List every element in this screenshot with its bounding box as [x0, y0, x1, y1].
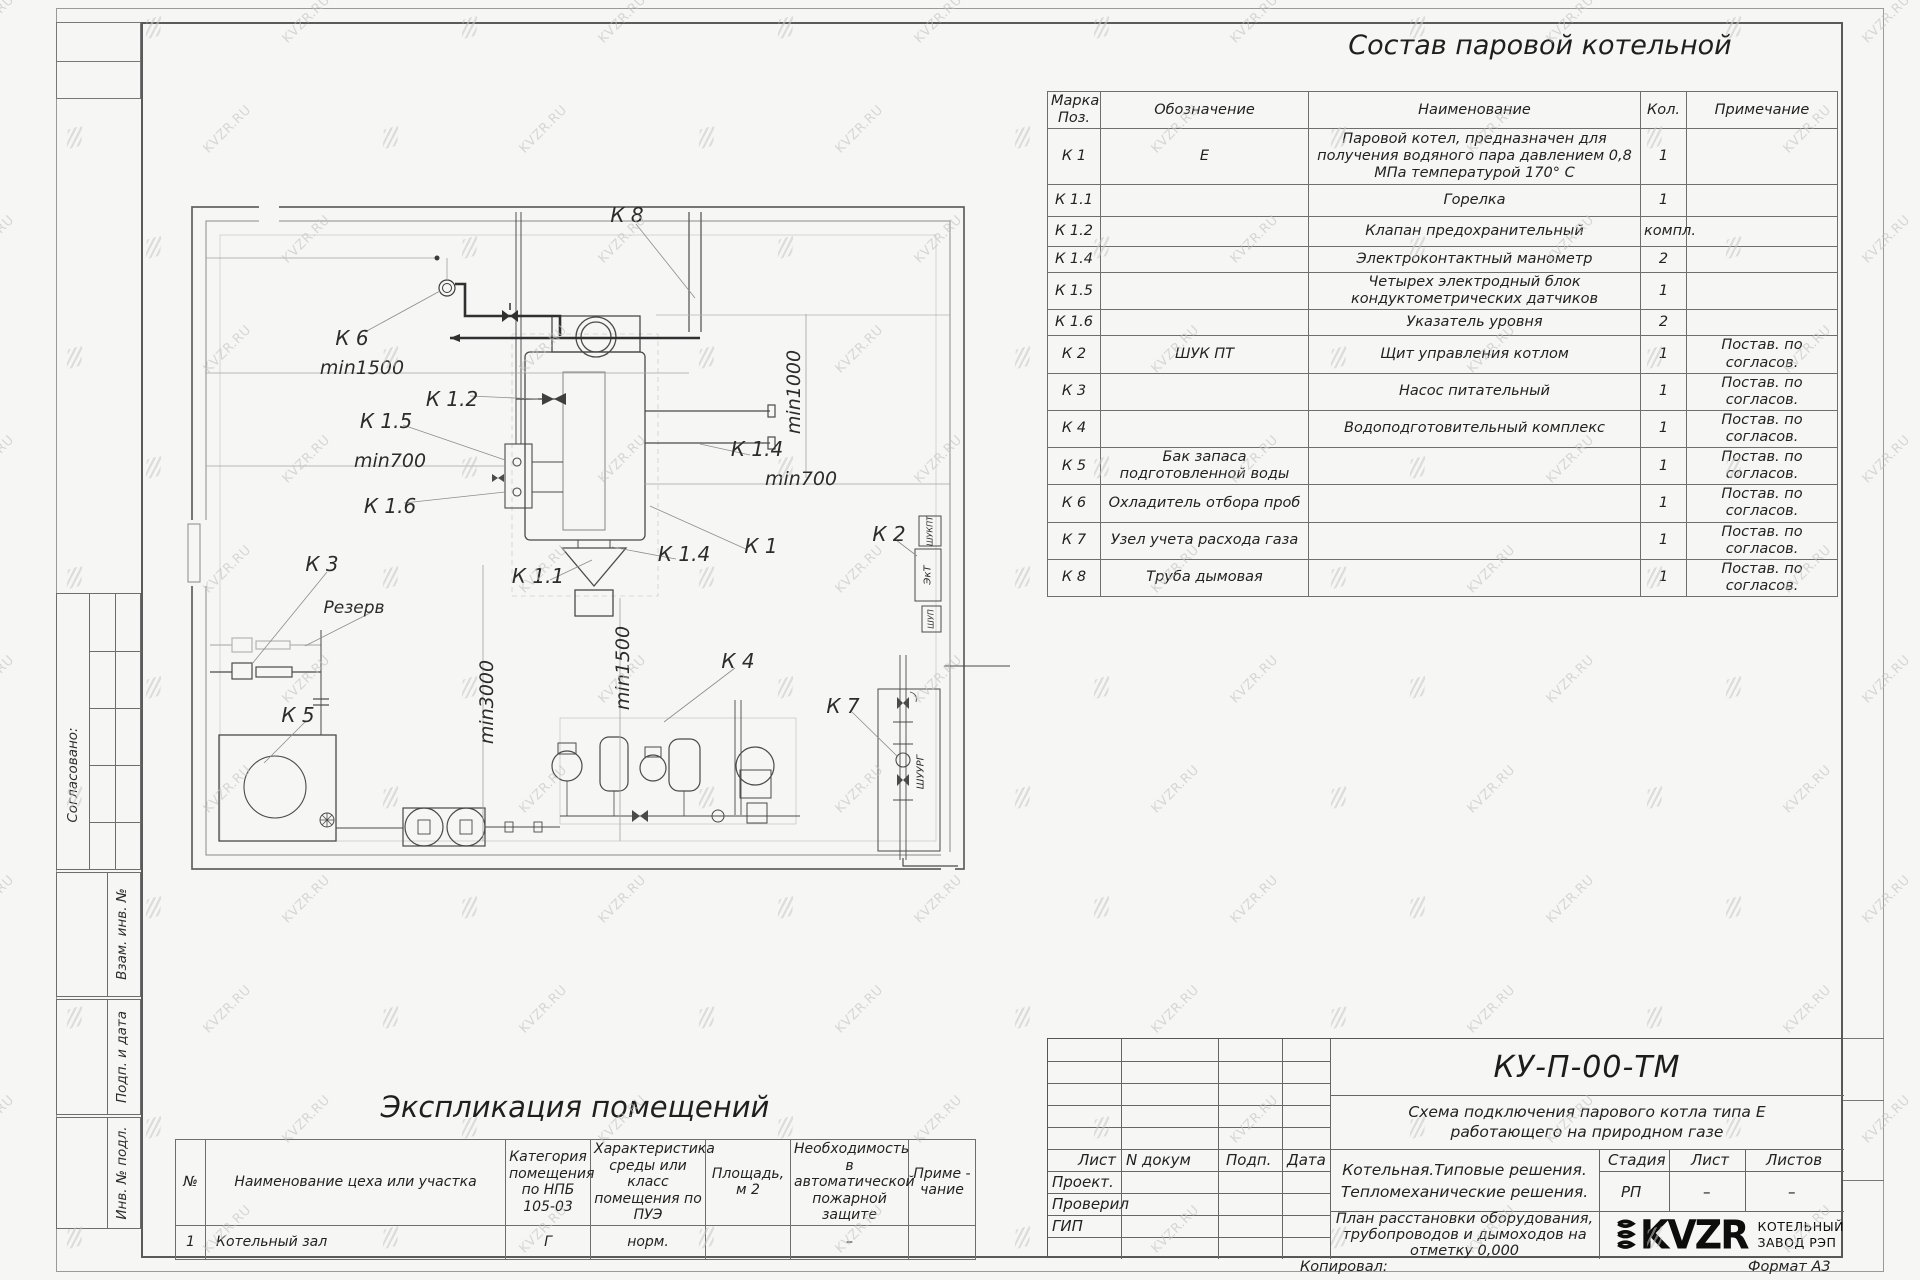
role-checked: Проверил: [1052, 1195, 1129, 1213]
leader-lines: [252, 224, 917, 763]
feed-pump-reserve: [210, 638, 321, 652]
cabinet-label-shuurg: ШУУРГ: [916, 755, 927, 789]
plan-label-k5: К 5: [281, 703, 314, 727]
plan-dim-min3000: min3000: [476, 660, 498, 744]
table-row: К 7Узел учета расхода газа1Постав. по со…: [1048, 522, 1838, 559]
pump-unit: [336, 808, 560, 846]
table-row: К 2ШУК ПТЩит управления котлом1Постав. п…: [1048, 336, 1838, 373]
dimension-lines: [206, 314, 950, 841]
sheets-value: –: [1788, 1183, 1796, 1201]
kvzr-logo-caption: КОТЕЛЬНЫЙ ЗАВОД РЭП: [1757, 1219, 1844, 1252]
document-subtitle: Схема подключения парового котла типа Е …: [1330, 1097, 1844, 1147]
col-header-env: Характеристика среды или класс помещения…: [591, 1140, 706, 1226]
cabinet-label-shup: ШУП: [927, 609, 936, 628]
sheets-header: Листов: [1766, 1151, 1822, 1169]
gas-metering-unit: [878, 655, 1010, 866]
table-row: К 4Водоподготовительный комплекс1Постав.…: [1048, 410, 1838, 447]
table-row: 1 Котельный зал Г норм. –: [176, 1225, 976, 1259]
table-header-row: № Наименование цеха или участка Категори…: [176, 1140, 976, 1226]
subtitle-line2: работающего на природном газе: [1451, 1122, 1724, 1142]
table-row: К 1.2Клапан предохранительныйкомпл.: [1048, 217, 1838, 247]
sample-cooler-pipes: [206, 256, 700, 343]
plan-dim-min1500-top: min1500: [320, 357, 404, 379]
document-number: КУ-П-00-ТМ: [1330, 1039, 1844, 1095]
role-project: Проект.: [1052, 1173, 1114, 1191]
rev-header-date: Дата: [1287, 1151, 1326, 1169]
col-header-name: Наименование: [1309, 92, 1641, 129]
plan-label-k1: К 1: [744, 534, 777, 558]
table-row: К 1.5Четырех электродный блок кондуктоме…: [1048, 273, 1838, 310]
cabinet-label-ekt: ЭкТ: [923, 565, 934, 584]
composition-table-title: Состав паровой котельной: [1240, 30, 1840, 61]
plan-label-k14-lower: К 1.4: [658, 542, 710, 566]
plan-label-k14-upper: К 1.4: [731, 437, 783, 461]
col-header-note: Приме - чание: [909, 1140, 976, 1226]
plan-label-k12: К 1.2: [426, 387, 478, 411]
object-description: Котельная.Типовые решения. Тепломеханиче…: [1330, 1151, 1599, 1211]
explication-table: № Наименование цеха или участка Категори…: [175, 1139, 976, 1260]
role-gip: ГИП: [1052, 1217, 1083, 1235]
rev-header-doc: N докум: [1126, 1151, 1191, 1169]
stage-value: РП: [1621, 1183, 1641, 1201]
plan-dim-min1500-mid: min1500: [612, 626, 634, 710]
col-header-mark: Марка Поз.: [1048, 92, 1101, 129]
rev-header-sign: Подп.: [1226, 1151, 1271, 1169]
table-header-row: Марка Поз. Обозначение Наименование Кол.…: [1048, 92, 1838, 129]
table-row: К 6Охладитель отбора проб1Постав. по сог…: [1048, 485, 1838, 522]
plan-label-rezerv: Резерв: [323, 598, 384, 618]
title-block: Лист N докум Подп. Дата Проект. Проверил…: [1047, 1038, 1843, 1258]
sheet-header: Лист: [1691, 1151, 1729, 1169]
plan-label-k3: К 3: [305, 552, 338, 576]
plan-label-k16: К 1.6: [364, 494, 416, 518]
chimney-flue: [656, 212, 950, 332]
drawing-sheet: Согласовано: Взам. инв. № Подп. и дата И…: [0, 0, 1920, 1280]
plan-dim-min700-left: min700: [354, 450, 426, 472]
rev-header-sheet: Лист: [1078, 1151, 1116, 1169]
plan-label-k2: К 2: [872, 522, 905, 546]
plan-label-k8: К 8: [610, 203, 643, 227]
kvzr-logo-icon: [1615, 1215, 1636, 1255]
col-header-num: №: [176, 1140, 206, 1226]
plan-label-k6: К 6: [335, 326, 368, 350]
drawing-name: План расстановки оборудования, трубопров…: [1330, 1211, 1599, 1259]
table-row: К 1.4Электроконтактный манометр2: [1048, 247, 1838, 273]
format-label: Формат А3: [1748, 1259, 1831, 1275]
water-treatment-complex: [552, 700, 800, 824]
col-header-designation: Обозначение: [1101, 92, 1309, 129]
cabinet-label-shukpt: ШУКПТ: [926, 516, 935, 546]
plan-label-k7: К 7: [826, 694, 859, 718]
col-header-shop-name: Наименование цеха или участка: [206, 1140, 506, 1226]
composition-table: Марка Поз. Обозначение Наименование Кол.…: [1047, 91, 1838, 597]
table-row: К 1.6Указатель уровня2: [1048, 310, 1838, 336]
safety-valve: [516, 212, 566, 444]
object-line1: Котельная.Типовые решения.: [1342, 1159, 1587, 1181]
explication-table-title: Экспликация помещений: [175, 1090, 975, 1124]
walls: [184, 202, 964, 872]
copied-label: Копировал:: [1300, 1259, 1388, 1275]
plan-label-k11: К 1.1: [512, 564, 564, 588]
company-logo: KVZR КОТЕЛЬНЫЙ ЗАВОД РЭП: [1599, 1211, 1844, 1259]
sheet-value: –: [1703, 1183, 1711, 1201]
object-line2: Тепломеханические решения.: [1341, 1181, 1588, 1203]
table-row: К 1.1Горелка1: [1048, 185, 1838, 217]
col-header-category: Категория помещения по НПБ 105-03: [506, 1140, 591, 1226]
level-instrument-box: [492, 444, 563, 508]
col-header-qty: Кол.: [1641, 92, 1687, 129]
water-storage-tank: [219, 735, 336, 841]
col-header-fire: Необходимость в автоматической пожарной …: [791, 1140, 909, 1226]
col-header-note: Примечание: [1687, 92, 1838, 129]
subtitle-line1: Схема подключения парового котла типа Е: [1408, 1102, 1765, 1122]
plan-label-k15: К 1.5: [360, 409, 412, 433]
table-row: К 1ЕПаровой котел, предназначен для полу…: [1048, 129, 1838, 185]
plan-dim-min1000: min1000: [783, 350, 805, 434]
plan-dim-min700-right: min700: [765, 468, 837, 490]
plan-label-k4: К 4: [721, 649, 754, 673]
table-row: К 5Бак запаса подготовленной воды1Постав…: [1048, 448, 1838, 485]
stage-header: Стадия: [1608, 1151, 1666, 1169]
table-row: К 8Труба дымовая1Постав. по согласов.: [1048, 559, 1838, 596]
kvzr-logo-text: KVZR: [1640, 1212, 1748, 1258]
col-header-area: Площадь, м 2: [706, 1140, 791, 1226]
table-row: К 3Насос питательный1Постав. по согласов…: [1048, 373, 1838, 410]
